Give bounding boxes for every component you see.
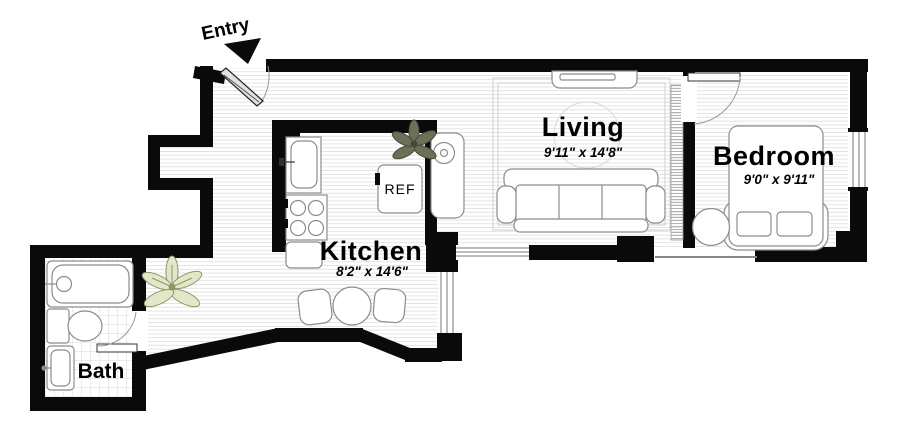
kitchen-label: Kitchen (320, 236, 423, 266)
bathroom-sink (42, 346, 74, 390)
window-bedroom-east (848, 128, 868, 191)
bathtub (45, 261, 133, 307)
wall-niche-west (148, 135, 160, 180)
entry-label: Entry (200, 14, 252, 45)
wall-bath-top (30, 245, 211, 258)
wall-bath-bottom (30, 397, 146, 411)
wall-bottom-short (405, 348, 442, 362)
entry-arrow-icon (224, 38, 261, 64)
wall-right-lower (850, 188, 867, 234)
wall-kitchen-west (272, 120, 286, 252)
bedroom-dimensions: 9'0" x 9'11" (744, 172, 815, 187)
bedroom-label: Bedroom (713, 141, 835, 171)
pillow-left (737, 212, 771, 236)
wall-bottom-middle (275, 328, 363, 342)
island-counter (431, 133, 464, 218)
window-dining-east (438, 268, 456, 337)
wall-niche-bottom (148, 178, 213, 190)
tv-console (552, 71, 637, 88)
wall-dining-corner-block (437, 333, 462, 361)
bath-label: Bath (78, 360, 125, 383)
kitchen-dimensions: 8'2" x 14'6" (336, 264, 408, 279)
sofa (497, 169, 665, 232)
wall-right-upper (850, 59, 867, 131)
window-living-south (452, 245, 533, 260)
dining-chair-right (373, 288, 407, 324)
living-label: Living (542, 112, 625, 142)
floor-plan-svg: Entry Living 9'11" x 14'8" Bedroom 9'0" … (0, 0, 911, 423)
floor-plan: Entry Living 9'11" x 14'8" Bedroom 9'0" … (0, 0, 911, 423)
floor-niche (158, 145, 213, 180)
dining-furniture (297, 287, 406, 326)
living-dimensions: 9'11" x 14'8" (544, 145, 623, 160)
bedside-chair (693, 209, 730, 246)
toilet (47, 309, 102, 343)
wall-bath-west (30, 245, 45, 411)
refrigerator-label: REF (385, 181, 416, 197)
lower-counter (286, 242, 322, 268)
wall-living-bottom (530, 245, 626, 260)
wall-top (266, 59, 868, 72)
pillow-right (777, 212, 812, 236)
stove (284, 195, 327, 240)
dining-table (333, 287, 371, 325)
dining-chair-left (297, 288, 333, 326)
